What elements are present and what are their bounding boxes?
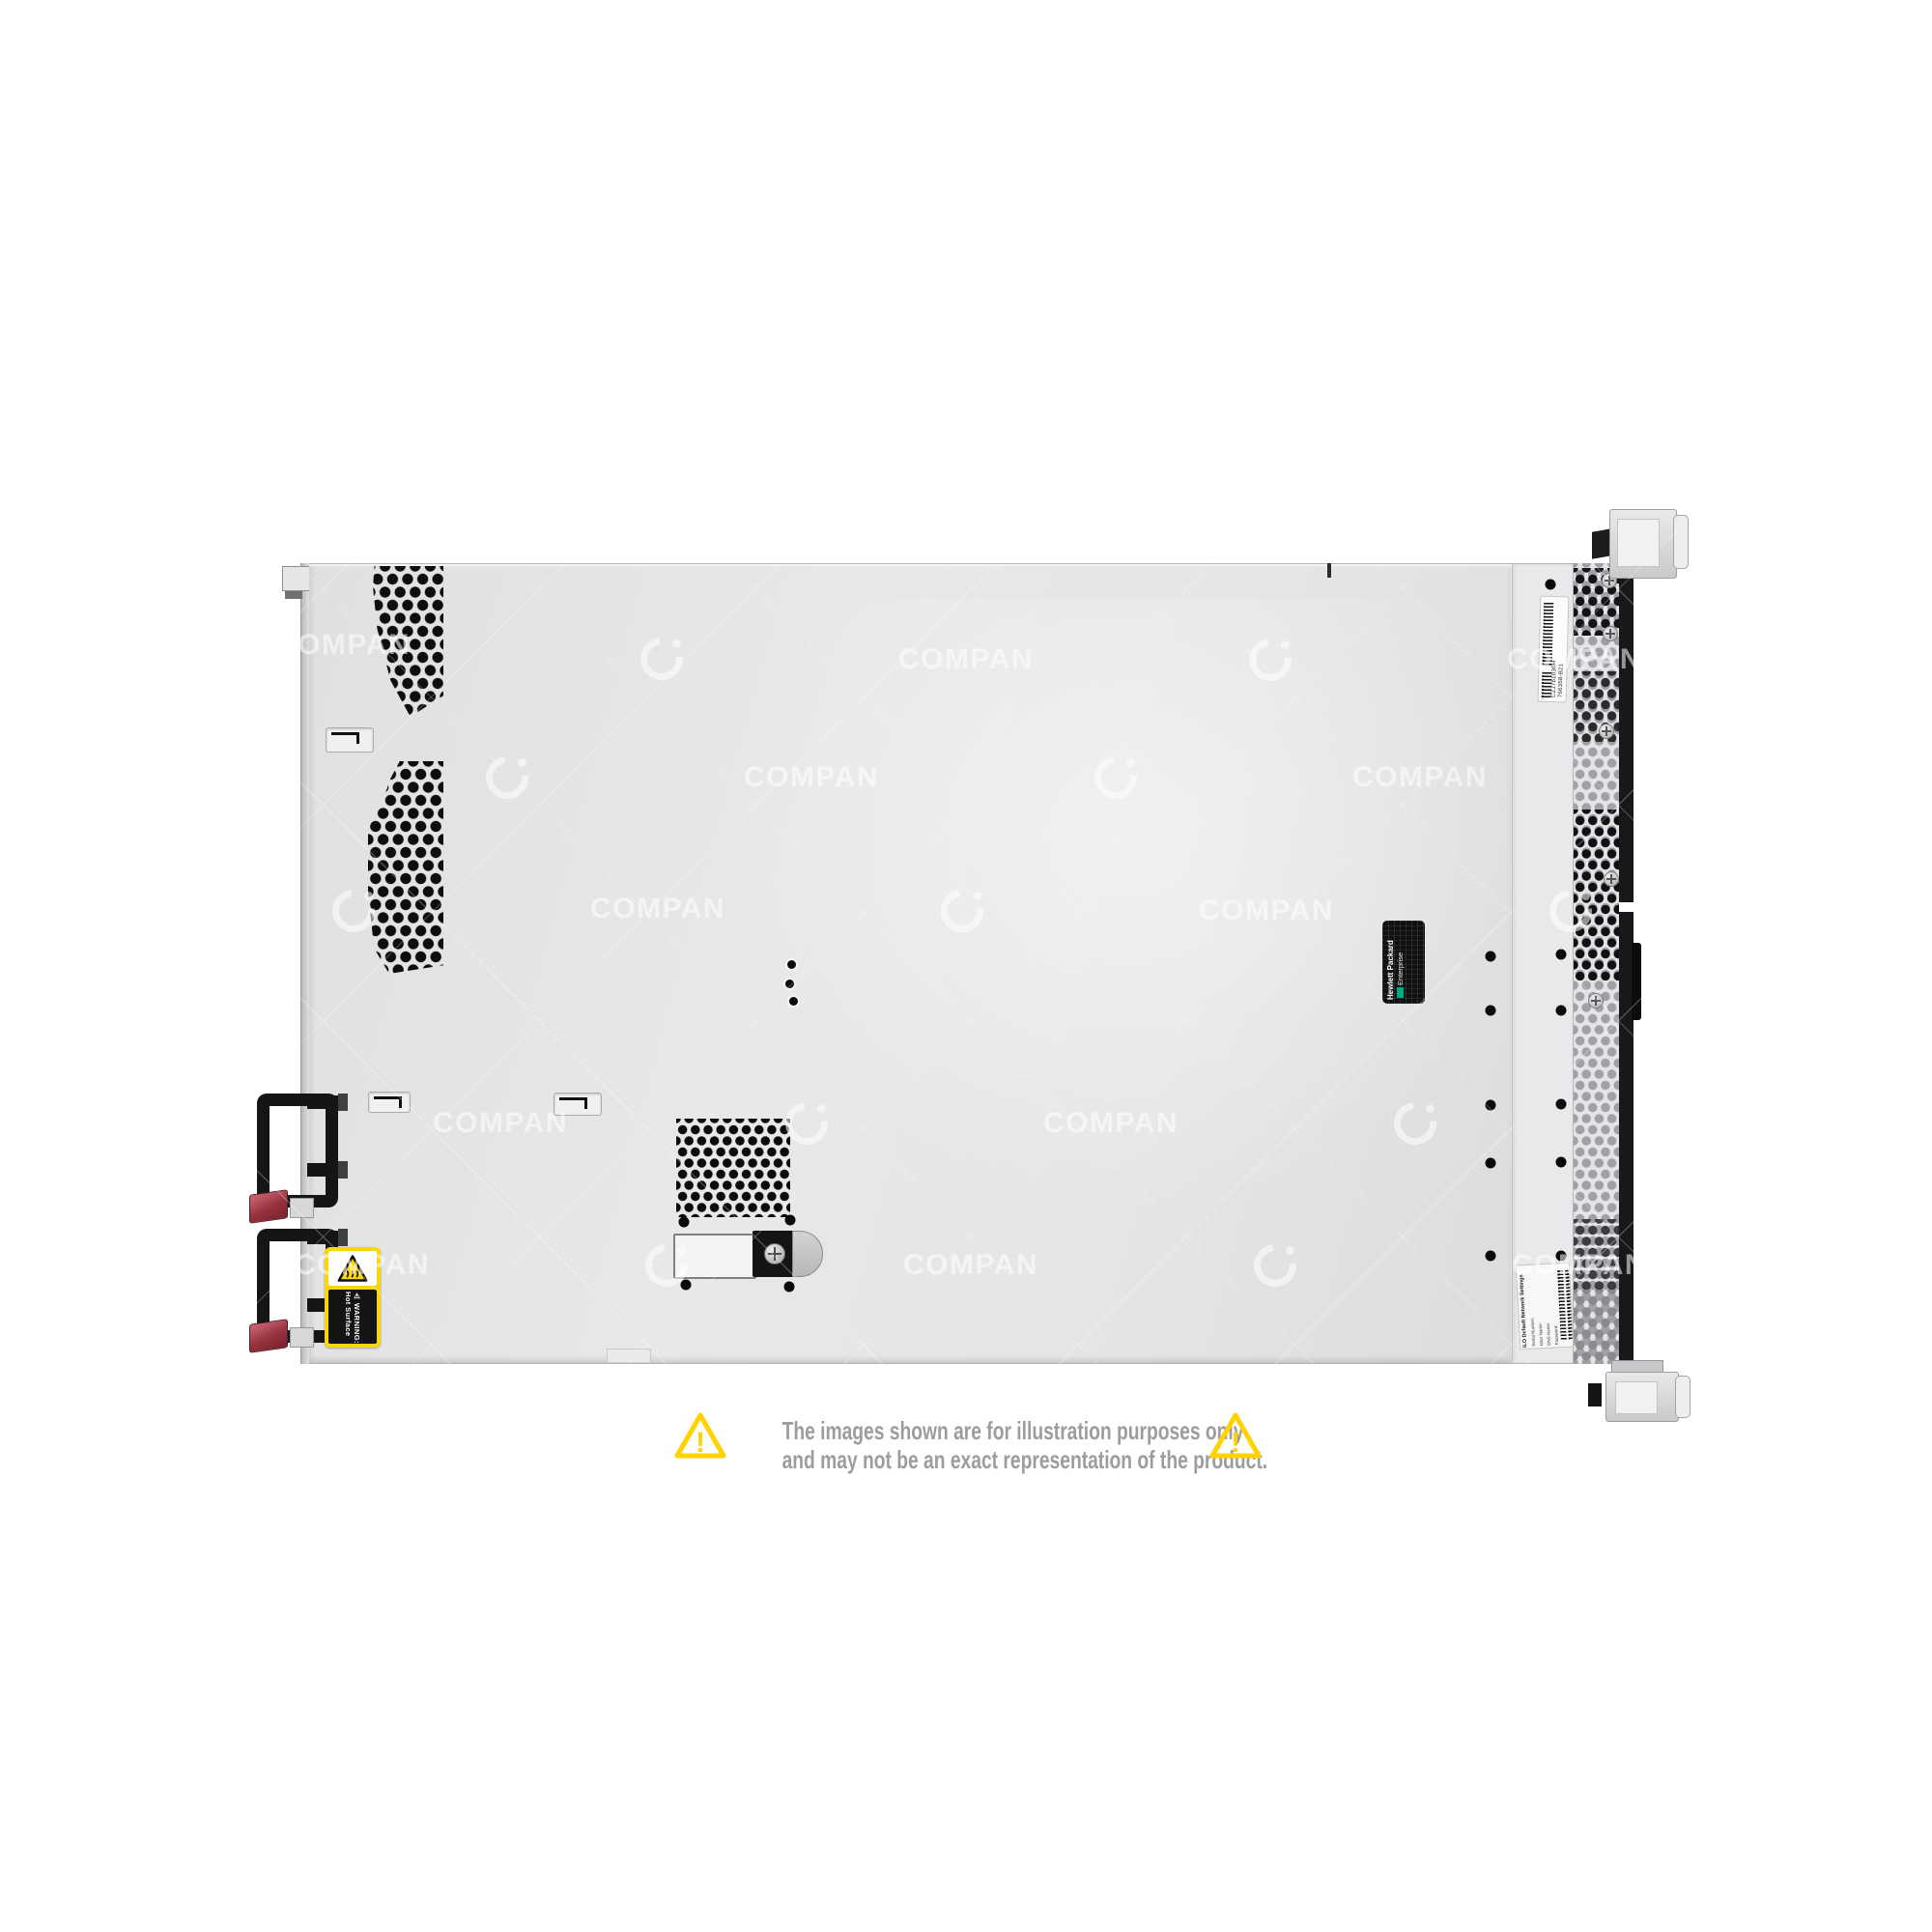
screw-hole bbox=[1556, 1157, 1567, 1168]
bezel-vent-patch bbox=[1574, 1290, 1619, 1362]
screw-hole bbox=[784, 1282, 795, 1293]
cover-seam-notch bbox=[1327, 563, 1331, 578]
rear-bracket-lip bbox=[285, 591, 302, 599]
rack-ear-thumb-tab[interactable] bbox=[1673, 515, 1689, 569]
screw-hole bbox=[679, 1217, 690, 1228]
philips-screw bbox=[1599, 724, 1614, 739]
psu-release-latch[interactable] bbox=[249, 1189, 288, 1224]
brand-line1: Hewlett Packard bbox=[1386, 924, 1396, 1000]
philips-screw bbox=[1603, 626, 1618, 641]
service-barcode-label: CZJ761030H 766358-B21 bbox=[1538, 596, 1570, 703]
psu-handle-loop[interactable] bbox=[257, 1094, 338, 1207]
front-face-gap bbox=[1619, 902, 1634, 912]
psu-handle-arm bbox=[307, 1095, 342, 1109]
warning-triangle-icon: ! bbox=[674, 1411, 726, 1460]
rear-bracket bbox=[282, 566, 309, 591]
bezel-vent-patch bbox=[1574, 810, 1619, 980]
psu-handle-arm bbox=[307, 1231, 342, 1244]
part-number: 766358-B21 bbox=[1558, 601, 1568, 697]
screw-hole bbox=[1486, 1158, 1496, 1169]
rack-ear-thumb-tab[interactable] bbox=[1675, 1376, 1690, 1418]
cover-hole bbox=[785, 980, 794, 988]
bezel-vent-patch bbox=[1574, 1219, 1619, 1290]
psu-handle[interactable] bbox=[251, 1090, 348, 1186]
disclaimer-line1: The images shown are for illustration pu… bbox=[782, 1416, 1154, 1445]
screw-hole bbox=[1486, 952, 1496, 962]
fan-vent-grid bbox=[676, 1119, 790, 1217]
psu-latch-connector bbox=[290, 1327, 314, 1348]
warning-subtext: Hot Surface bbox=[344, 1292, 353, 1344]
screw-hole bbox=[1486, 1006, 1496, 1016]
hpe-brand-label: Hewlett Packard Enterprise bbox=[1382, 921, 1425, 1004]
warning-triangle-box bbox=[328, 1251, 377, 1286]
watermark-logo-ring bbox=[279, 511, 339, 571]
screw-hole bbox=[1556, 1099, 1567, 1110]
cover-hole bbox=[787, 960, 796, 969]
warning-triangle-icon: ! bbox=[1209, 1411, 1262, 1460]
warning-heading: ⚠ WARNING: bbox=[353, 1292, 361, 1344]
front-face-tab bbox=[1632, 943, 1641, 1020]
rack-ear-lever[interactable] bbox=[1588, 1383, 1602, 1406]
cover-latch[interactable] bbox=[368, 1092, 411, 1113]
rack-ear-bottom bbox=[1584, 1356, 1700, 1426]
ilo-settings-label: iLO Default Network Settings Serial Numb… bbox=[1516, 1263, 1575, 1350]
warning-text-panel: ⚠ WARNING: Hot Surface bbox=[328, 1290, 377, 1344]
psu-handle-hinge bbox=[338, 1229, 348, 1246]
screw-hole bbox=[681, 1280, 692, 1291]
warning-glyph-icon: ⚠ bbox=[353, 1292, 361, 1300]
brand-line2: Enterprise bbox=[1396, 924, 1406, 1000]
product-photo: ⚠ WARNING: Hot Surface Hewlett Packard E… bbox=[0, 0, 1932, 1932]
philips-screw bbox=[1588, 993, 1604, 1009]
hpe-green-mark-icon bbox=[1398, 987, 1405, 998]
screw-hole bbox=[1546, 580, 1556, 590]
cover-latch[interactable] bbox=[326, 727, 374, 753]
screw-hole bbox=[1556, 1006, 1567, 1016]
screw-hole bbox=[1556, 1251, 1567, 1262]
watermark-logo-dot bbox=[320, 522, 328, 530]
screw-hole bbox=[1556, 950, 1567, 960]
psu-latch-connector bbox=[290, 1198, 314, 1218]
watermark-logo-icon bbox=[288, 520, 330, 562]
philips-screw bbox=[1604, 871, 1619, 887]
cover-hole bbox=[789, 997, 798, 1006]
svg-text:!: ! bbox=[696, 1427, 705, 1459]
rack-ear-face bbox=[1617, 519, 1660, 567]
screw-hole bbox=[785, 1215, 796, 1226]
latch-hook-icon bbox=[374, 1096, 402, 1108]
rack-ear-top bbox=[1584, 507, 1700, 582]
disclaimer-line2: and may not be an exact representation o… bbox=[782, 1445, 1154, 1474]
screw-hole bbox=[1486, 1100, 1496, 1111]
disclaimer-text: The images shown are for illustration pu… bbox=[782, 1416, 1154, 1474]
screw-hole bbox=[1486, 1251, 1496, 1262]
psu-handle-hinge bbox=[338, 1161, 348, 1179]
svg-text:!: ! bbox=[1231, 1427, 1240, 1459]
cover-release-tray bbox=[673, 1234, 756, 1279]
rack-ear-face bbox=[1615, 1381, 1658, 1414]
latch-hook-icon bbox=[559, 1097, 587, 1109]
thumbscrew[interactable] bbox=[764, 1243, 785, 1264]
rack-ear-lever[interactable] bbox=[1592, 528, 1611, 559]
hot-surface-warning-label: ⚠ WARNING: Hot Surface bbox=[325, 1247, 381, 1348]
cover-latch[interactable] bbox=[554, 1093, 602, 1116]
cover-seam-plate bbox=[607, 1349, 651, 1362]
psu-handle-hinge bbox=[338, 1094, 348, 1111]
hot-surface-icon bbox=[336, 1254, 369, 1283]
psu-release-latch[interactable] bbox=[249, 1319, 288, 1353]
latch-hook-icon bbox=[331, 732, 359, 744]
psu-handle-arm bbox=[307, 1163, 342, 1177]
